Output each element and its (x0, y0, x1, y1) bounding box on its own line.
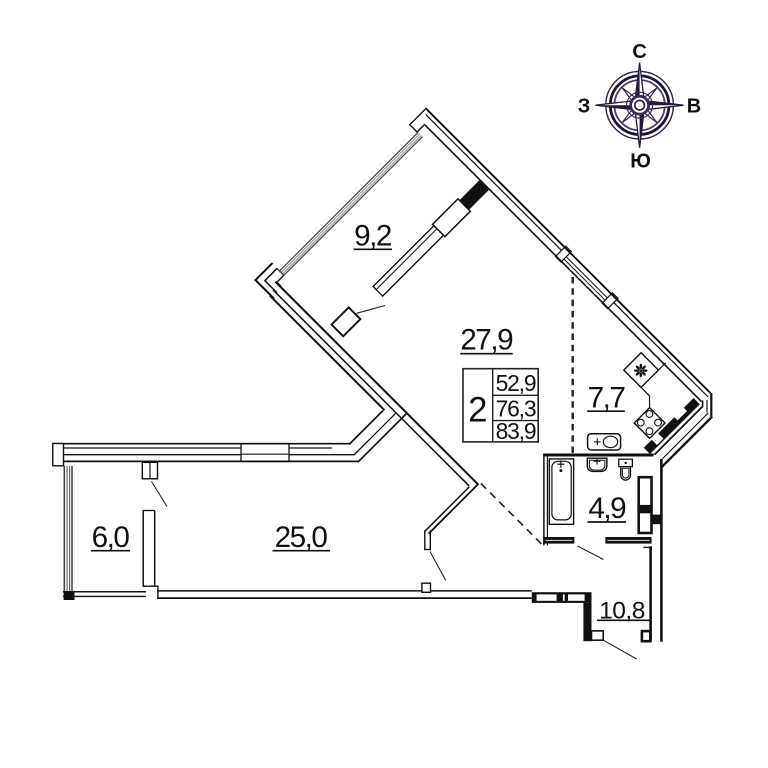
svg-text:2: 2 (468, 391, 487, 430)
svg-text:В: В (687, 96, 701, 118)
svg-text:52,9: 52,9 (496, 370, 536, 396)
svg-text:С: С (632, 41, 646, 63)
svg-text:7,7: 7,7 (588, 382, 626, 415)
svg-text:83,9: 83,9 (496, 418, 536, 444)
svg-text:4,9: 4,9 (588, 492, 626, 525)
svg-text:6,0: 6,0 (92, 521, 130, 554)
svg-text:Ю: Ю (630, 151, 651, 173)
svg-text:З: З (578, 96, 591, 118)
svg-text:25,0: 25,0 (275, 521, 328, 554)
svg-text:9,2: 9,2 (354, 220, 392, 253)
svg-text:27,9: 27,9 (460, 324, 513, 357)
